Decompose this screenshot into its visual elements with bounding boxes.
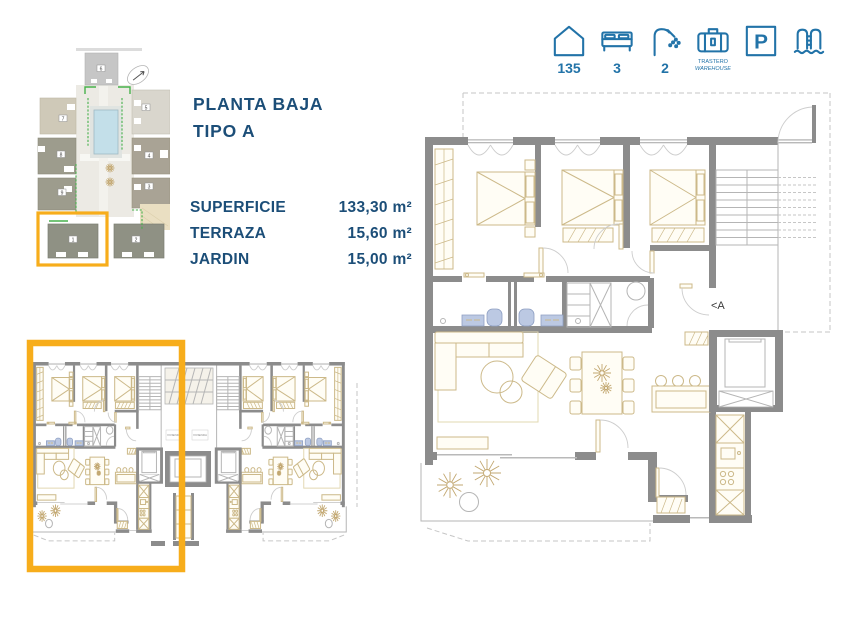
site-courtyard bbox=[76, 85, 134, 217]
building-label-1: 1 bbox=[72, 238, 75, 244]
feature-storage-label: TRASTERO bbox=[698, 59, 728, 66]
plan-subtitle: TIPO A bbox=[193, 121, 256, 142]
building-label-3: 3 bbox=[148, 185, 151, 191]
feature-bathrooms-value: 2 bbox=[661, 60, 669, 76]
duplex-floor-plan: VIVIENDA VIVIENDA bbox=[25, 335, 370, 593]
duplex-unit-right bbox=[215, 362, 346, 541]
feature-surface-value: 135 bbox=[557, 60, 580, 76]
building-label-7: 7 bbox=[62, 117, 65, 123]
apartment-drawing bbox=[421, 137, 783, 541]
feature-pool bbox=[789, 24, 829, 76]
feature-storage-sublabel: WAREHOUSE bbox=[695, 66, 731, 73]
site-north-arrow bbox=[124, 62, 152, 89]
brochure-page: 135 3 2 bbox=[0, 0, 850, 620]
spec-value: 15,60 m² bbox=[348, 225, 412, 243]
section-marker-label: <A bbox=[711, 300, 725, 312]
feature-storage: TRASTERO WAREHOUSE bbox=[693, 24, 733, 76]
plan-title: PLANTA BAJA bbox=[193, 94, 323, 115]
feature-bedrooms: 3 bbox=[597, 24, 637, 76]
spec-row-jardin: JARDIN 15,00 m² bbox=[190, 251, 412, 269]
building-label-4: 4 bbox=[148, 154, 151, 160]
building-label-5: 5 bbox=[145, 106, 148, 112]
parking-letter: P bbox=[754, 31, 768, 54]
bed-icon bbox=[600, 24, 634, 58]
building-label-8: 8 bbox=[60, 153, 63, 159]
site-plan-caption-bar bbox=[76, 48, 142, 51]
feature-icons-row: 135 3 2 bbox=[549, 24, 829, 76]
duplex-unit-labels: VIVIENDA VIVIENDA bbox=[166, 430, 208, 440]
spec-row-superficie: SUPERFICIE 133,30 m² bbox=[190, 199, 412, 217]
spec-label: TERRAZA bbox=[190, 225, 266, 243]
entry-landing bbox=[778, 105, 816, 238]
feature-bathrooms: 2 bbox=[645, 24, 685, 76]
spec-row-terraza: TERRAZA 15,60 m² bbox=[190, 225, 412, 243]
building-label-6: 6 bbox=[100, 67, 103, 73]
site-plan: 6 5 4 3 7 8 9 1 2 bbox=[36, 46, 170, 268]
spec-label: SUPERFICIE bbox=[190, 199, 286, 217]
pool-ladder-icon bbox=[792, 24, 826, 58]
spec-label: JARDIN bbox=[190, 251, 250, 269]
building-label-2: 2 bbox=[135, 238, 138, 244]
spec-value: 15,00 m² bbox=[348, 251, 412, 269]
feature-bedrooms-value: 3 bbox=[613, 60, 621, 76]
spec-value: 133,30 m² bbox=[339, 199, 412, 217]
feature-parking: P bbox=[741, 24, 781, 76]
building-label-9: 9 bbox=[61, 191, 64, 197]
house-icon bbox=[552, 24, 586, 58]
specs-table: SUPERFICIE 133,30 m² TERRAZA 15,60 m² JA… bbox=[190, 199, 412, 277]
site-pool bbox=[94, 110, 118, 154]
feature-surface: 135 bbox=[549, 24, 589, 76]
unit-label-right: VIVIENDA bbox=[193, 433, 207, 437]
duplex-unit-left bbox=[32, 362, 163, 541]
suitcase-icon bbox=[696, 24, 730, 58]
shower-icon bbox=[648, 24, 682, 58]
parking-icon: P bbox=[744, 24, 778, 58]
main-floor-plan: <A bbox=[420, 85, 850, 560]
